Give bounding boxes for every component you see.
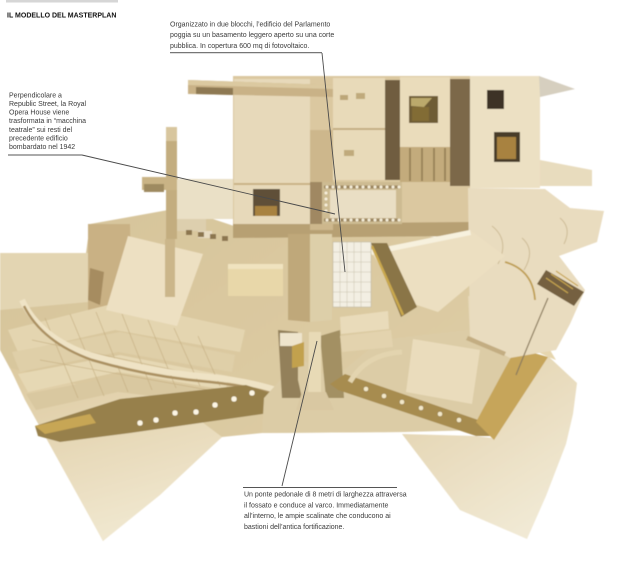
svg-text:Republic Street, la Royal: Republic Street, la Royal [9, 101, 86, 108]
svg-text:pubblica. In copertura 600 mq: pubblica. In copertura 600 mq di fotovol… [170, 43, 309, 50]
svg-text:trasformata in “macchina: trasformata in “macchina [9, 118, 86, 125]
svg-text:Un ponte pedonale di 8 metri d: Un ponte pedonale di 8 metri di larghezz… [244, 492, 407, 499]
svg-text:il fossato e conduce al varco.: il fossato e conduce al varco. Immediata… [244, 502, 388, 509]
svg-text:poggia su un basamento leggero: poggia su un basamento leggero aperto su… [170, 32, 334, 39]
svg-text:Organizzato in due blocchi, l’: Organizzato in due blocchi, l’edificio d… [170, 22, 330, 29]
svg-text:all’interno, le ampie scalinat: all’interno, le ampie scalinate che cond… [244, 513, 391, 520]
svg-text:bastioni dell’antica fortifica: bastioni dell’antica fortificazione. [244, 524, 344, 531]
svg-text:precedente edificio: precedente edificio [9, 135, 68, 142]
svg-text:Perpendicolare a: Perpendicolare a [9, 93, 62, 100]
svg-text:IL MODELLO DEL MASTERPLAN: IL MODELLO DEL MASTERPLAN [7, 13, 116, 20]
svg-text:bombardato nel 1942: bombardato nel 1942 [9, 144, 75, 151]
svg-text:teatrale” sui resti del: teatrale” sui resti del [9, 127, 72, 134]
svg-text:Opera House viene: Opera House viene [9, 110, 69, 117]
